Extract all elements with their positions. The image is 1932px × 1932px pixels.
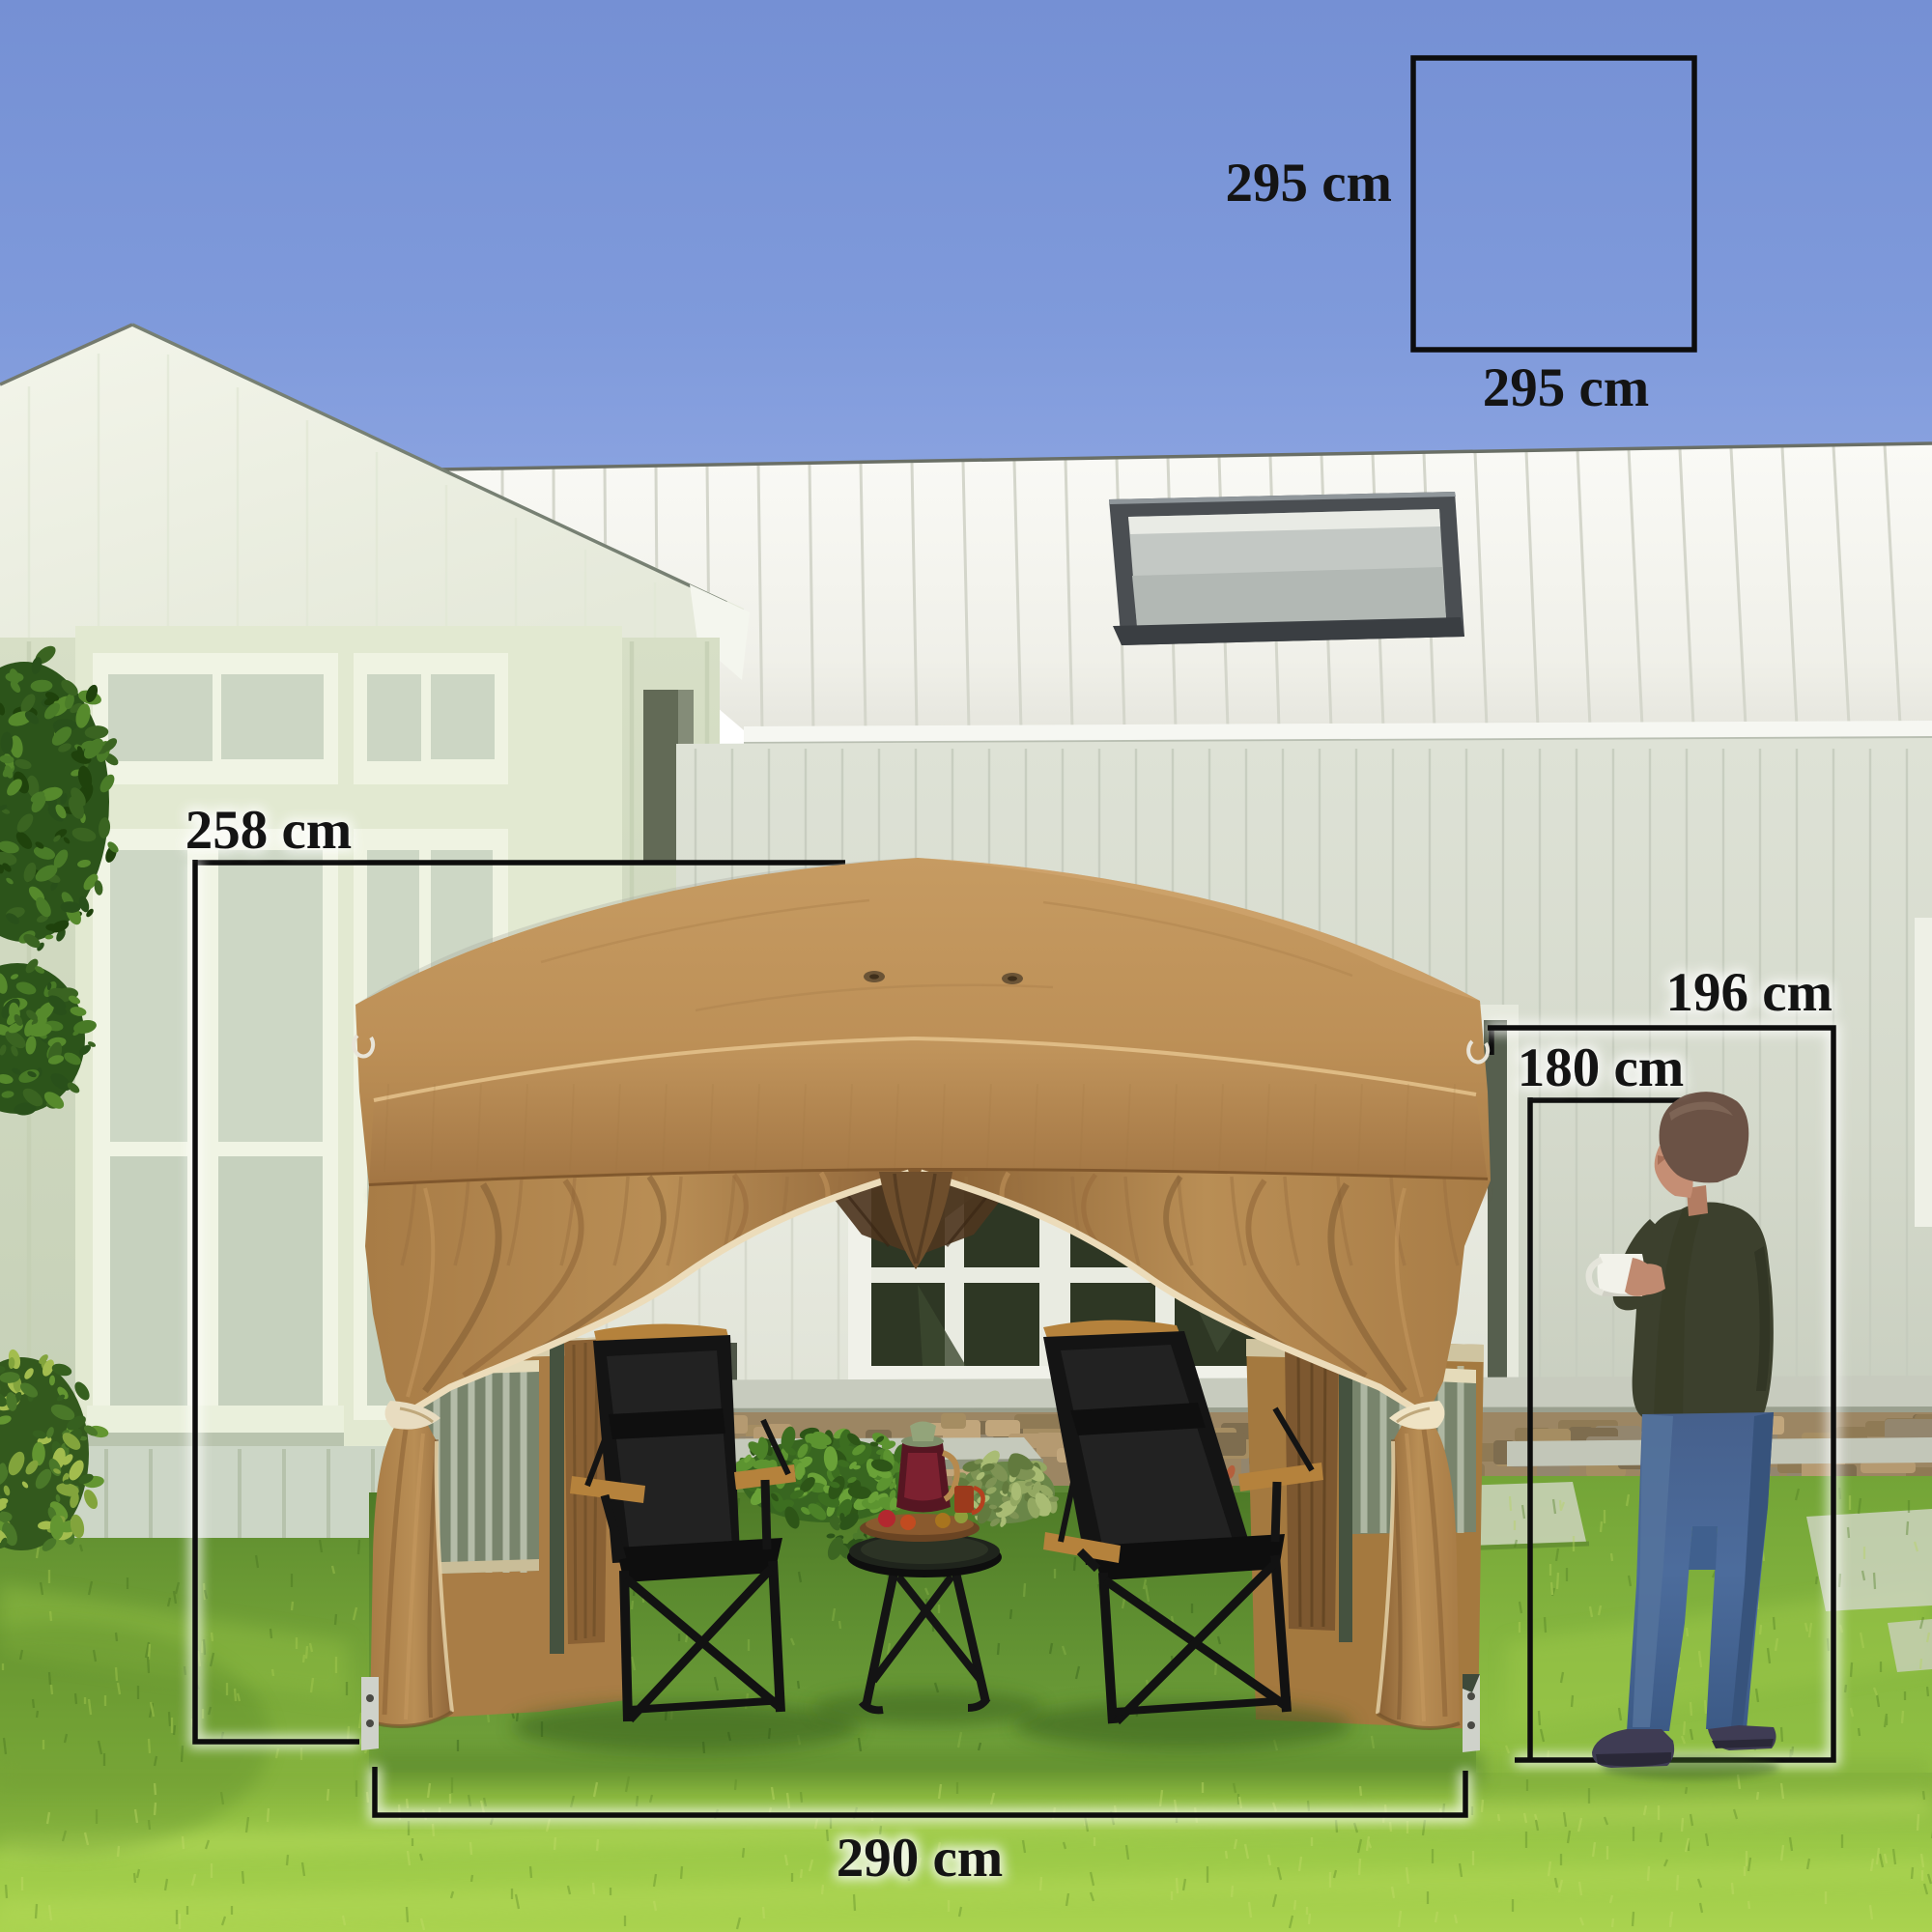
svg-text:295 cm: 295 cm: [1225, 153, 1392, 213]
svg-text:180 cm: 180 cm: [1518, 1037, 1685, 1098]
svg-text:295 cm: 295 cm: [1483, 357, 1650, 418]
svg-text:196 cm: 196 cm: [1665, 962, 1833, 1023]
svg-text:258 cm: 258 cm: [185, 800, 353, 861]
svg-text:290 cm: 290 cm: [837, 1828, 1004, 1889]
